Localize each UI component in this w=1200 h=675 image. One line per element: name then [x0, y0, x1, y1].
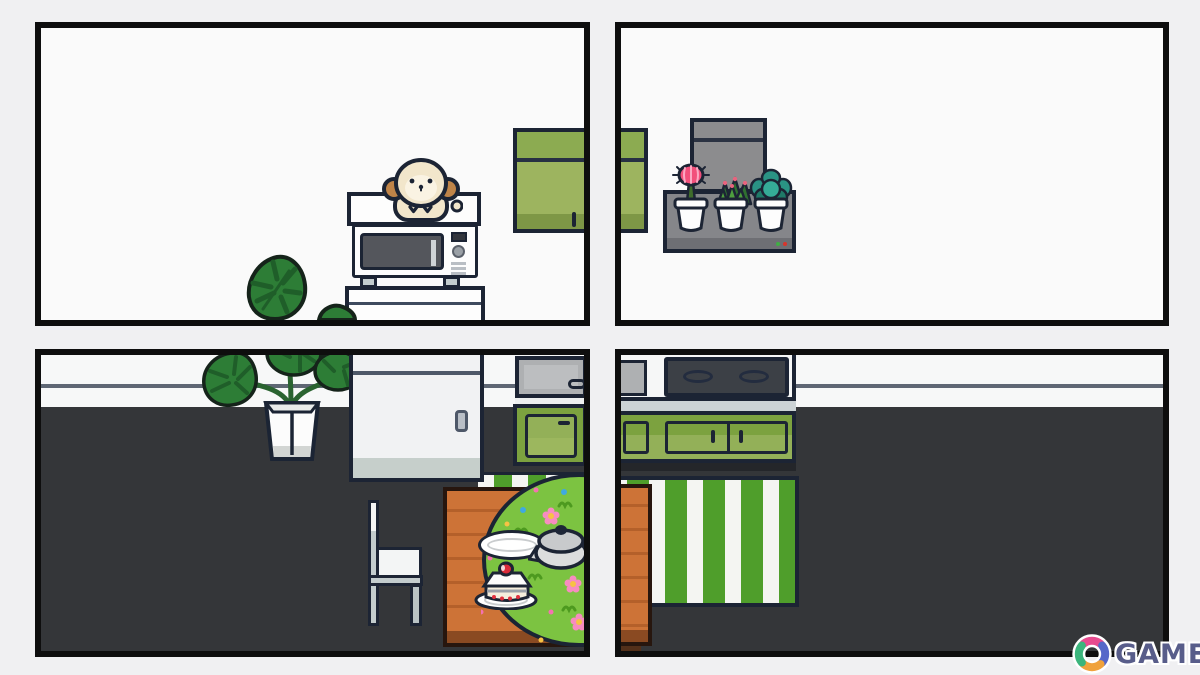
- monstera-leaves[interactable]: [243, 253, 361, 320]
- burner: [739, 370, 769, 383]
- wall-cabinet-divider: [615, 158, 644, 162]
- shelf-light-green: [776, 242, 780, 246]
- panel-top-right: [615, 22, 1169, 326]
- wall-cabinet-top: [517, 132, 586, 158]
- moon-cactus: [673, 165, 709, 231]
- fridge-bottom: [353, 458, 480, 478]
- appliance-seam: [694, 138, 763, 142]
- microwave-button[interactable]: [451, 272, 466, 275]
- cabinet-door-handle[interactable]: [558, 421, 570, 425]
- fridge-handle[interactable]: [455, 410, 468, 432]
- cake-side: [486, 586, 528, 601]
- panel-top-left: [35, 22, 590, 326]
- microwave-display: [451, 232, 467, 242]
- puppy-body-group: [384, 160, 462, 220]
- chair-leg: [410, 584, 422, 626]
- microwave-button[interactable]: [451, 267, 466, 270]
- plank-line: [615, 528, 648, 531]
- monstera-leaf-left: [204, 353, 256, 406]
- base-cabinets[interactable]: [615, 411, 796, 463]
- puppy-eye-right: [428, 179, 433, 184]
- base-cabinet[interactable]: [513, 404, 587, 466]
- cabinet-door-partial[interactable]: [623, 421, 649, 454]
- stove-top[interactable]: [664, 357, 789, 397]
- wall-cabinet-divider: [517, 158, 586, 162]
- gamer-watermark: GAMER: [1072, 634, 1200, 674]
- counter-strip: [615, 401, 796, 411]
- table-edge[interactable]: [615, 484, 652, 646]
- plank-line: [615, 600, 648, 603]
- microwave-button[interactable]: [451, 262, 466, 265]
- wall-cabinet-top: [615, 132, 644, 158]
- cake-plate[interactable]: [473, 558, 543, 610]
- plant-pot: [266, 403, 318, 459]
- wall-cabinet[interactable]: [513, 128, 590, 233]
- door-divider: [727, 424, 730, 451]
- plank-line: [615, 624, 648, 627]
- plank-line: [615, 504, 648, 507]
- pot-knob: [555, 525, 567, 535]
- monstera-leaf-group: [249, 257, 355, 320]
- plank-line: [615, 576, 648, 579]
- collage-background: GAMER: [0, 0, 1200, 675]
- door-handle[interactable]: [711, 430, 715, 443]
- wall-cabinet-edge[interactable]: [615, 128, 648, 233]
- potted-plants[interactable]: [665, 162, 801, 238]
- panel-bottom-left: [35, 349, 590, 657]
- door-handle[interactable]: [739, 430, 743, 443]
- pot-body: [718, 208, 744, 231]
- succulent: [715, 177, 751, 231]
- monstera-leaf-top: [267, 349, 321, 375]
- microwave-knob[interactable]: [452, 245, 465, 258]
- fridge-seam: [353, 371, 480, 375]
- table-foot: [621, 646, 641, 652]
- microwave-door-bar: [431, 240, 436, 266]
- puppy-tail: [452, 201, 462, 211]
- refrigerator[interactable]: [349, 351, 484, 482]
- pot-body: [678, 208, 704, 231]
- puppy-eye-left: [410, 179, 415, 184]
- plank-line: [615, 552, 648, 555]
- microwave[interactable]: [352, 224, 478, 278]
- table-bottom-edge: [615, 630, 648, 642]
- sink-counter[interactable]: [515, 356, 587, 398]
- cabinet-door[interactable]: [525, 414, 577, 458]
- faucet: [568, 379, 586, 389]
- cart-shelf-line: [349, 302, 481, 305]
- gamer-logo-icon: [1072, 634, 1112, 674]
- monstera-small-leaf: [319, 306, 355, 320]
- shelf-front-bar: [667, 238, 792, 249]
- gamer-watermark-text: GAMER: [1115, 639, 1200, 670]
- echeveria: [751, 170, 791, 231]
- shelf-light-red: [783, 242, 787, 246]
- microwave-cart-lower[interactable]: [345, 286, 485, 326]
- cabinet-shadow: [615, 463, 796, 471]
- burner: [683, 370, 713, 383]
- sink-edge[interactable]: [619, 360, 647, 396]
- panel-bottom-right: [615, 349, 1169, 657]
- cabinet-doors-frame[interactable]: [665, 421, 788, 454]
- stove-counter[interactable]: [615, 351, 796, 401]
- puppy[interactable]: [379, 158, 463, 222]
- chair-back-top: [371, 503, 376, 531]
- pot-body: [758, 208, 784, 231]
- wall-cabinet-handle[interactable]: [572, 212, 576, 227]
- microwave-door[interactable]: [360, 233, 444, 270]
- wall-cabinet-shadow: [615, 214, 644, 229]
